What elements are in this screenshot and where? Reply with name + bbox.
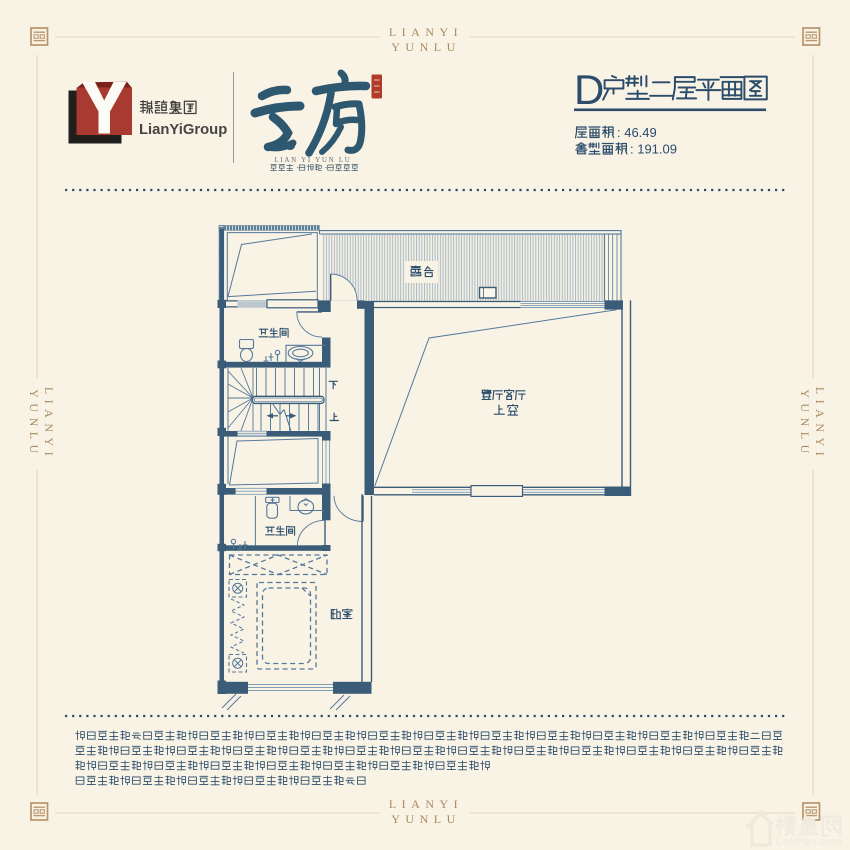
- svg-text:LIAN YI YUN LU: LIAN YI YUN LU: [274, 156, 351, 164]
- svg-text:YUNLU: YUNLU: [798, 389, 812, 459]
- svg-text:: 46.49: : 46.49: [617, 125, 657, 140]
- svg-text:LouPan.com: LouPan.com: [776, 836, 842, 848]
- svg-text:: 191.09: : 191.09: [630, 142, 677, 157]
- svg-text:YUNLU: YUNLU: [27, 389, 41, 459]
- svg-text:YUNLU: YUNLU: [391, 812, 461, 826]
- svg-text:LIANYI: LIANYI: [813, 387, 827, 461]
- svg-text:LianYiGroup: LianYiGroup: [139, 122, 227, 138]
- svg-text:D: D: [574, 66, 604, 113]
- svg-text:LIANYI: LIANYI: [389, 25, 463, 39]
- svg-text:LIANYI: LIANYI: [389, 797, 463, 811]
- svg-text:LIANYI: LIANYI: [42, 387, 56, 461]
- svg-text:YUNLU: YUNLU: [391, 40, 461, 54]
